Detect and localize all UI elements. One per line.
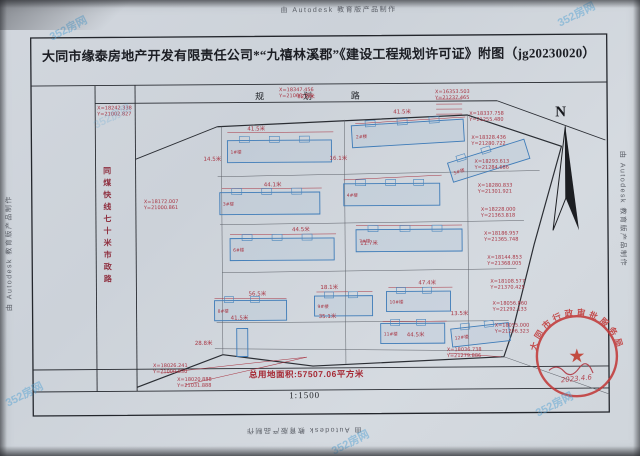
svg-text:Y=21292.133: Y=21292.133 [492,307,527,313]
building-6: 6#楼 [230,234,334,261]
svg-text:Y=21066.735: Y=21066.735 [278,93,313,99]
dimension-label: 56.5米 [248,289,266,297]
dimension-label: 18.1米 [320,283,338,291]
dimension-label: 13.5米 [451,309,469,317]
dimension-label: 28.8米 [195,339,213,347]
building-9: 9#楼 [314,292,372,316]
north-label: N [555,104,566,120]
dimension-label: 44.5米 [292,225,310,233]
dimension-label: 41.5米 [231,313,249,321]
dimension-label: 11.7米 [360,239,378,247]
scanned-plan-photo: 由 Autodesk 教育版产品制作 由 Autodesk 教育版产品制作 由 … [0,0,640,456]
svg-text:Y=21296.323: Y=21296.323 [494,329,529,335]
dimension-label: 41.5米 [247,124,265,132]
svg-text:Y=21370.425: Y=21370.425 [489,285,524,291]
building-4: 4#楼 [344,179,440,206]
top-road-label: 规 划 路 [255,90,378,103]
approval-stamp: 大同市行政审批服务局 ★ 2023.4.6 [528,307,625,397]
svg-text:Y=21284.686: Y=21284.686 [474,165,509,171]
drawing-sheet: 由 Autodesk 教育版产品制作 由 Autodesk 教育版产品制作 由 … [0,0,640,456]
dimension-label: 47.4米 [418,278,436,286]
svg-text:Y=21031.888: Y=21031.888 [176,383,211,389]
dimension-label: 35.1米 [319,312,337,320]
stamp-handwritten-date: 2023.4.6 [561,373,593,384]
dimension-label: 44.1米 [264,180,282,188]
svg-text:Y=21301.921: Y=21301.921 [477,189,512,195]
site-plan-svg: 规 划 路 1#楼 2#楼 3#楼 4#楼 [0,0,640,456]
svg-text:Y=21237.465: Y=21237.465 [434,95,469,101]
building-11: 11#楼 [381,319,445,343]
dimension-label: 44.5米 [407,330,425,338]
dimension-label: 16.1米 [329,154,347,162]
small-building [237,329,248,357]
svg-text:Y=21363.818: Y=21363.818 [480,213,515,219]
svg-text:Y=21280.722: Y=21280.722 [470,141,505,147]
svg-text:Y=21000.861: Y=21000.861 [143,205,178,211]
left-road-east-edge [135,85,137,391]
svg-text:Y=21255.480: Y=21255.480 [468,117,503,123]
svg-text:Y=21368.005: Y=21368.005 [486,261,521,267]
building-3: 3#楼 [220,188,320,215]
building-1: 1#楼 [227,136,331,163]
dimension-label: 41.5米 [393,107,411,115]
building-8: 8#楼 [214,296,286,321]
building-10: 10#楼 [386,287,450,311]
svg-text:Y=21279.886: Y=21279.886 [446,353,481,359]
svg-text:Y=21000.030: Y=21000.030 [152,369,187,375]
dimension-label: 14.5米 [203,155,221,163]
svg-text:Y=21365.748: Y=21365.748 [483,237,518,243]
building-7: 7#楼 [356,225,462,252]
